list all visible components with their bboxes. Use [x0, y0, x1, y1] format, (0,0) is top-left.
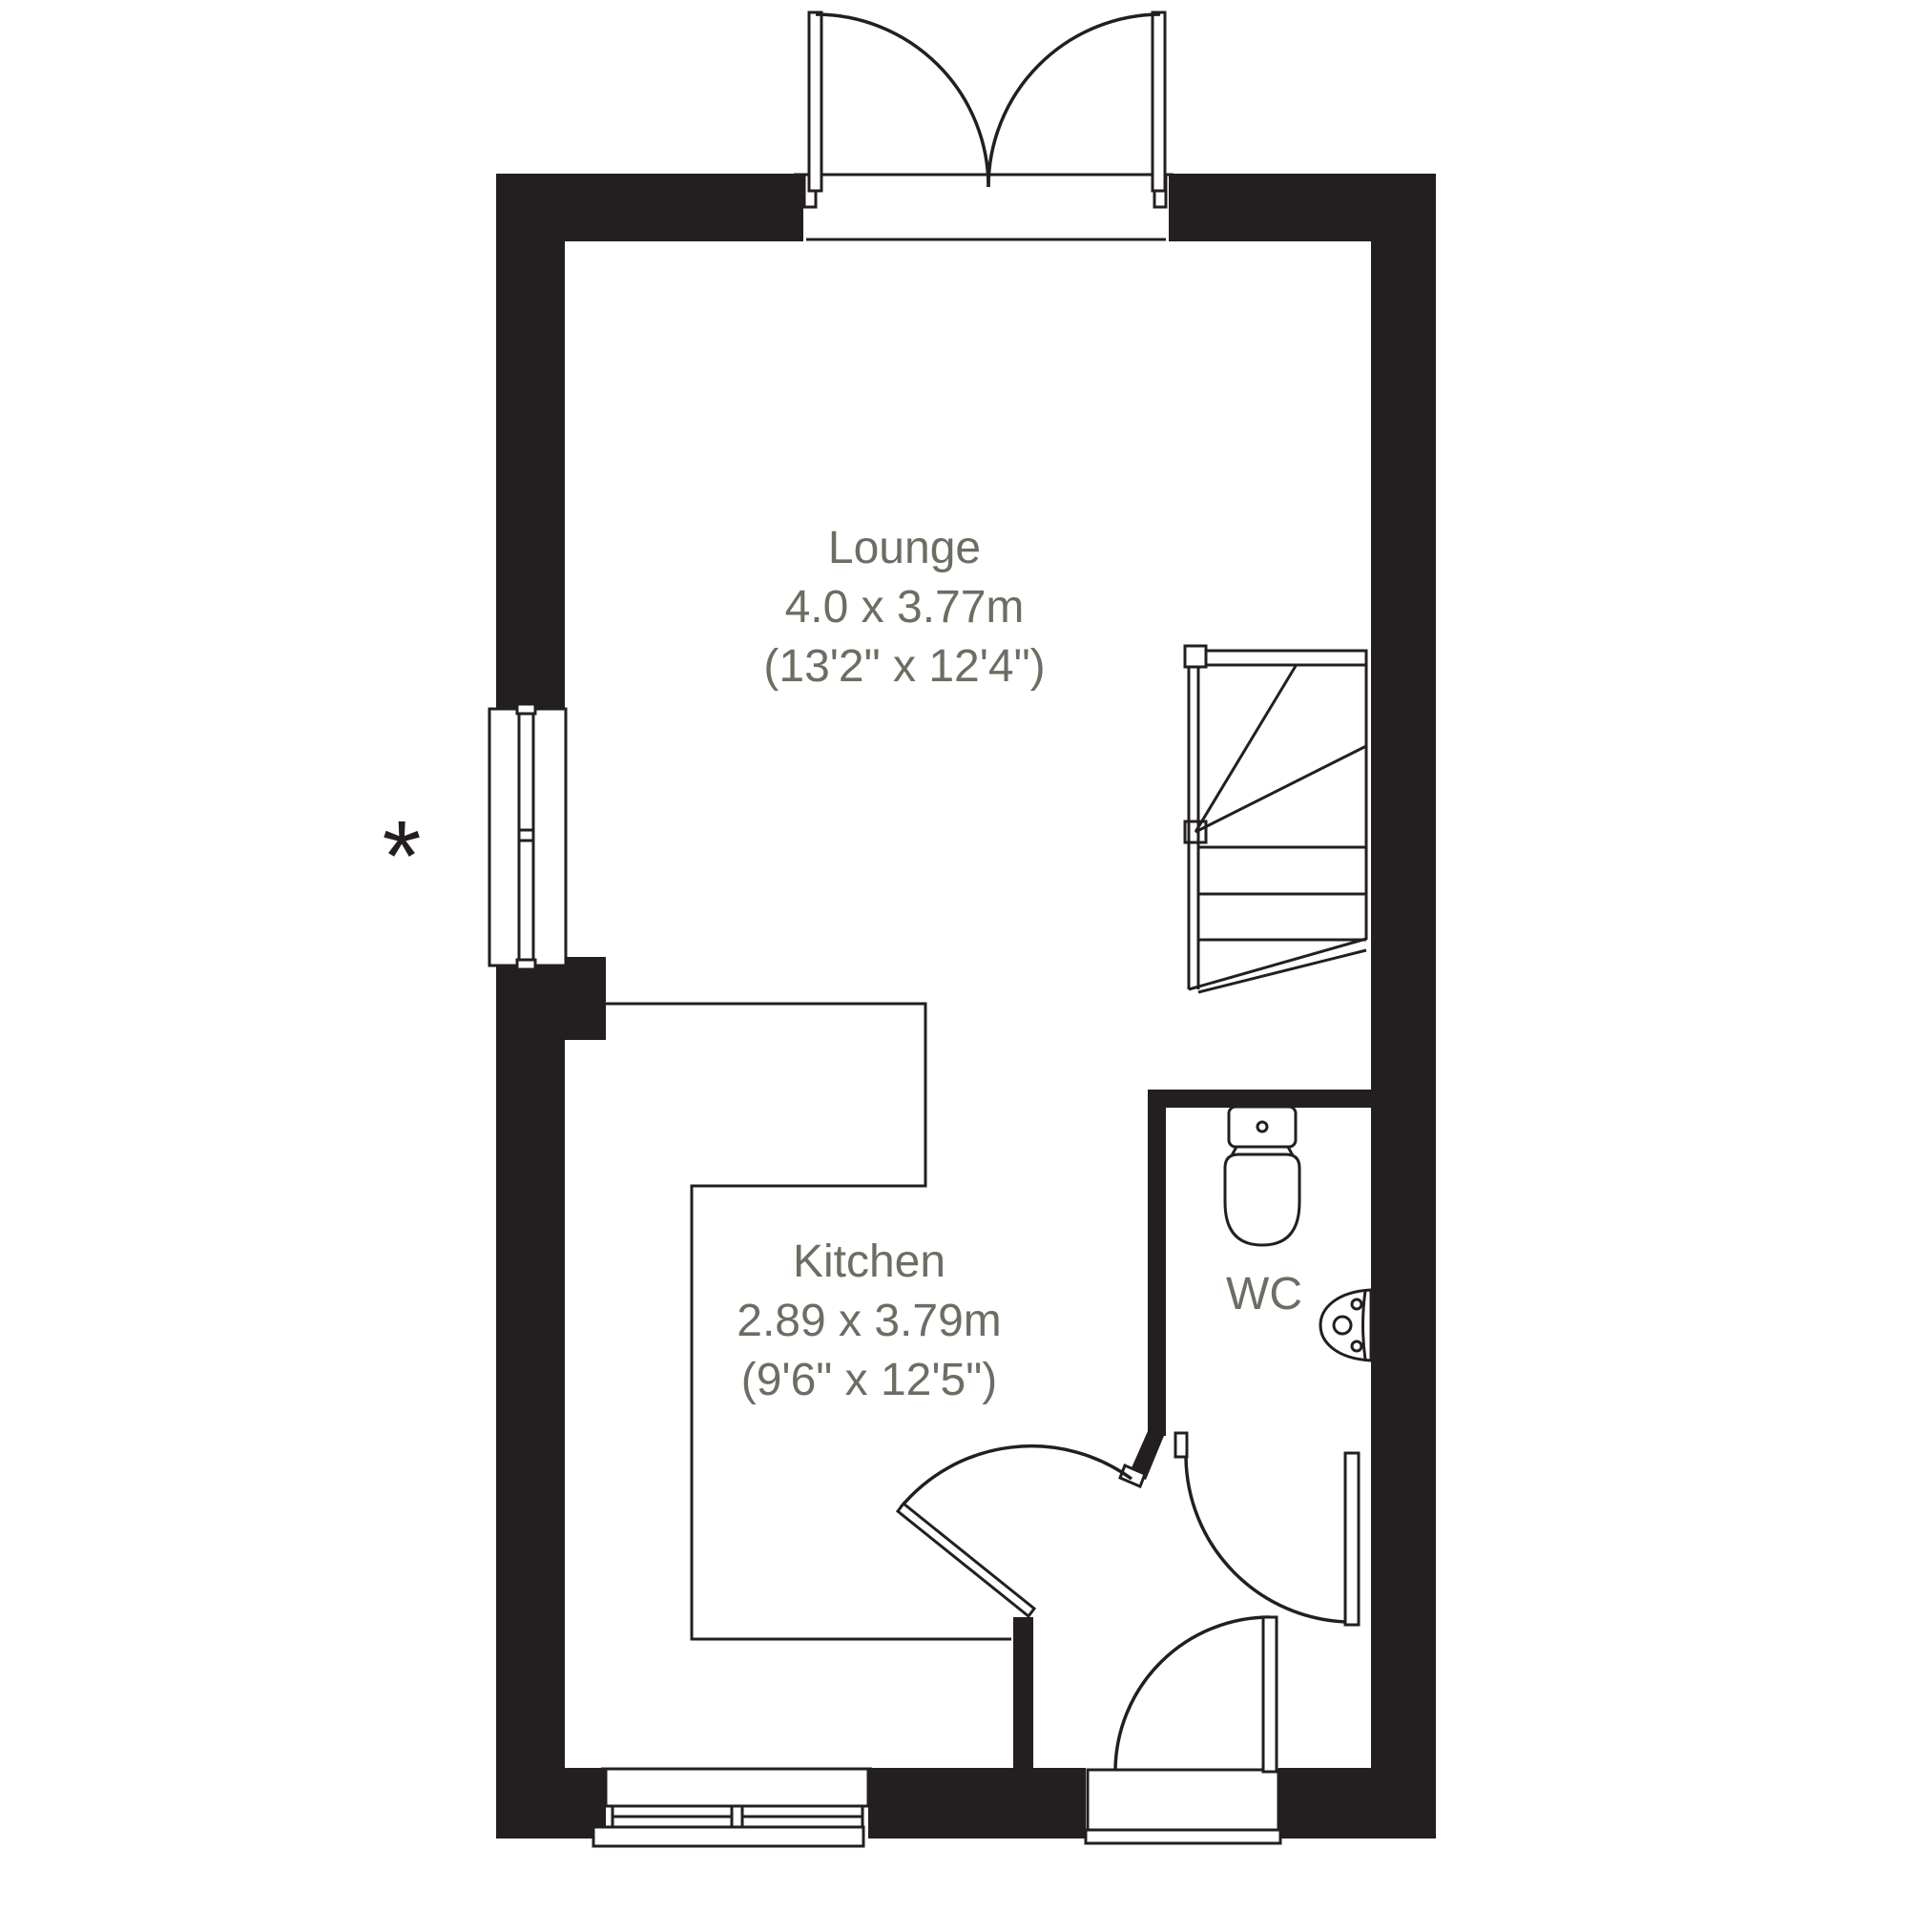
kitchen-door-swing-arc: [901, 1446, 1132, 1507]
front-door: [1086, 1617, 1280, 1843]
stairs-newel-top: [1185, 646, 1206, 667]
kitchen-label: Kitchen: [793, 1236, 945, 1287]
lounge-size-metric: 4.0 x 3.77m: [785, 582, 1025, 633]
french-door-right-leaf: [1153, 12, 1165, 191]
front-door-swing-arc: [1115, 1617, 1270, 1770]
wall-wc-west: [1148, 1090, 1166, 1436]
lounge-size-imperial: (13'2" x 12'4"): [763, 641, 1045, 692]
wc-door: [1175, 1433, 1359, 1625]
wall-bottom-left: [496, 1768, 606, 1839]
kitchen-door-leaf: [898, 1504, 1034, 1616]
front-door-threshold: [1088, 1770, 1278, 1830]
wc-door-jamb: [1175, 1433, 1187, 1457]
stairs: [1185, 646, 1366, 992]
stairs-break-line-a: [1189, 939, 1366, 989]
floor-plan: Lounge 4.0 x 3.77m (13'2" x 12'4") Kitch…: [0, 0, 1932, 1932]
sink-tap-1: [1352, 1299, 1361, 1309]
french-door-left-leaf: [809, 12, 821, 191]
window-left-glazing: [519, 714, 533, 960]
window-left-cap-bottom: [517, 960, 535, 969]
french-doors: [794, 12, 1174, 239]
wall-bottom-middle: [868, 1768, 1086, 1839]
interior-walls: [1013, 1090, 1371, 1768]
french-door-left-swing-arc: [816, 14, 988, 187]
window-note-asterisk: *: [383, 800, 422, 912]
wall-left-pier: [565, 957, 606, 1040]
sink-icon: [1320, 1290, 1371, 1361]
kitchen-size-metric: 2.89 x 3.79m: [737, 1296, 1002, 1346]
kitchen-size-imperial: (9'6" x 12'5"): [741, 1355, 998, 1405]
window-bottom-mullion: [732, 1806, 742, 1827]
window-left: [489, 704, 566, 969]
floor-plan-drawing: Lounge 4.0 x 3.77m (13'2" x 12'4") Kitch…: [0, 0, 1932, 1932]
window-bottom-reveal: [606, 1769, 868, 1806]
sink-tap-2: [1352, 1341, 1361, 1351]
wc-door-leaf: [1345, 1453, 1359, 1625]
stairs-top-rail: [1188, 651, 1366, 665]
french-door-right-swing-arc: [988, 14, 1160, 187]
front-door-sill: [1086, 1830, 1280, 1843]
wc-door-swing-arc: [1186, 1458, 1346, 1622]
window-left-cap-top: [517, 704, 535, 714]
wall-bottom-right: [1278, 1768, 1436, 1839]
window-bottom-sill: [593, 1827, 863, 1846]
stairs-break-line-b: [1198, 950, 1366, 992]
toilet-icon: [1225, 1107, 1299, 1245]
sink-drain: [1334, 1317, 1351, 1334]
wall-right: [1371, 174, 1436, 1839]
wall-wc-north: [1148, 1090, 1371, 1108]
toilet-flush-button: [1257, 1122, 1267, 1132]
kitchen-door: [898, 1446, 1145, 1616]
window-bottom: [593, 1769, 872, 1846]
exterior-walls: [496, 174, 1436, 1839]
wall-left-upper: [496, 174, 565, 709]
toilet-bowl: [1225, 1154, 1299, 1245]
wall-left-lower: [496, 966, 565, 1839]
front-door-leaf: [1263, 1617, 1277, 1772]
wall-kitchen-hall-stub: [1013, 1617, 1033, 1768]
wc-label: WC: [1226, 1269, 1302, 1319]
lounge-label: Lounge: [828, 523, 981, 573]
